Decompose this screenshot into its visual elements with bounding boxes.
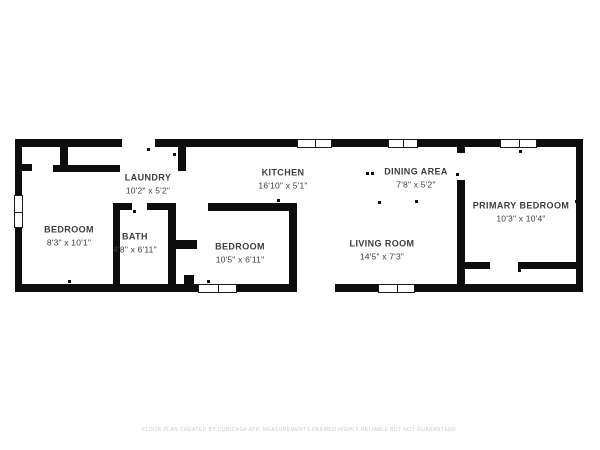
wall-primary-closet <box>518 262 577 269</box>
room-dimensions: 14'5" x 7'3" <box>350 250 415 262</box>
wall-bottom <box>237 284 297 292</box>
room-label-laundry: LAUNDRY 10'2" x 5'2" <box>125 171 171 196</box>
wall-primary-divider <box>457 180 465 292</box>
room-name: BATH <box>113 230 157 243</box>
room-label-living-room: LIVING ROOM 14'5" x 7'3" <box>350 237 415 262</box>
door-marker <box>456 173 459 176</box>
window <box>378 284 415 293</box>
room-dimensions: 4'8" x 6'11" <box>113 243 157 255</box>
wall-bedroom2-nook <box>176 240 197 249</box>
wall-top <box>15 139 122 147</box>
wall-marker <box>575 200 578 203</box>
wall-marker <box>378 201 381 204</box>
room-dimensions: 10'2" x 5'2" <box>125 184 171 196</box>
wall-left <box>15 228 22 292</box>
room-dimensions: 10'5" x 6'11" <box>215 253 265 265</box>
window <box>198 284 237 293</box>
window <box>14 195 23 228</box>
floor-plan: LAUNDRY 10'2" x 5'2" KITCHEN 16'10" x 5'… <box>0 0 600 450</box>
footer-disclaimer: FLOOR PLAN CREATED BY CUBICASA APP. MEAS… <box>0 427 600 433</box>
door-marker <box>133 210 136 213</box>
window <box>388 139 418 148</box>
wall-bedroom2-right <box>289 203 297 292</box>
wall-bottom <box>415 284 583 292</box>
room-name: DINING AREA <box>384 165 448 178</box>
window <box>297 139 332 148</box>
wall-top <box>155 139 297 147</box>
room-dimensions: 16'10" x 5'1" <box>258 179 307 191</box>
room-label-bedroom-left: BEDROOM 8'3" x 10'1" <box>44 223 94 248</box>
wall-marker <box>371 172 374 175</box>
window <box>500 139 537 148</box>
wall-primary-closet <box>458 262 490 269</box>
wall-bath-right <box>168 203 176 292</box>
room-dimensions: 8'3" x 10'1" <box>44 236 94 248</box>
wall-closet-stub <box>60 146 68 172</box>
wall-left <box>15 139 22 195</box>
wall-closet-jamb <box>22 164 32 171</box>
room-label-dining-area: DINING AREA 7'8" x 5'2" <box>384 165 448 190</box>
room-dimensions: 7'8" x 5'2" <box>384 178 448 190</box>
wall-bedroom2-left <box>184 275 194 288</box>
room-dimensions: 10'3" x 10'4" <box>473 212 570 224</box>
wall-marker <box>277 199 280 202</box>
room-label-bath: BATH 4'8" x 6'11" <box>113 230 157 255</box>
wall-primary-divider-stub <box>457 146 465 153</box>
room-label-bedroom-middle: BEDROOM 10'5" x 6'11" <box>215 240 265 265</box>
room-name: BEDROOM <box>215 240 265 253</box>
door-marker <box>518 269 521 272</box>
room-name: BEDROOM <box>44 223 94 236</box>
wall-laundry-divider <box>178 146 186 171</box>
wall-top <box>332 139 388 147</box>
room-name: LAUNDRY <box>125 171 171 184</box>
wall-bedroom2-top <box>208 203 297 211</box>
wall-right <box>576 139 583 292</box>
room-name: KITCHEN <box>258 166 307 179</box>
room-name: PRIMARY BEDROOM <box>473 199 570 212</box>
room-label-kitchen: KITCHEN 16'10" x 5'1" <box>258 166 307 191</box>
door-marker <box>147 148 150 151</box>
wall-marker <box>415 200 418 203</box>
wall-marker <box>519 150 522 153</box>
wall-marker <box>207 280 210 283</box>
room-label-primary-bedroom: PRIMARY BEDROOM 10'3" x 10'4" <box>473 199 570 224</box>
wall-marker <box>366 172 369 175</box>
room-name: LIVING ROOM <box>350 237 415 250</box>
door-marker <box>173 153 176 156</box>
wall-marker <box>68 280 71 283</box>
wall-bottom <box>335 284 378 292</box>
